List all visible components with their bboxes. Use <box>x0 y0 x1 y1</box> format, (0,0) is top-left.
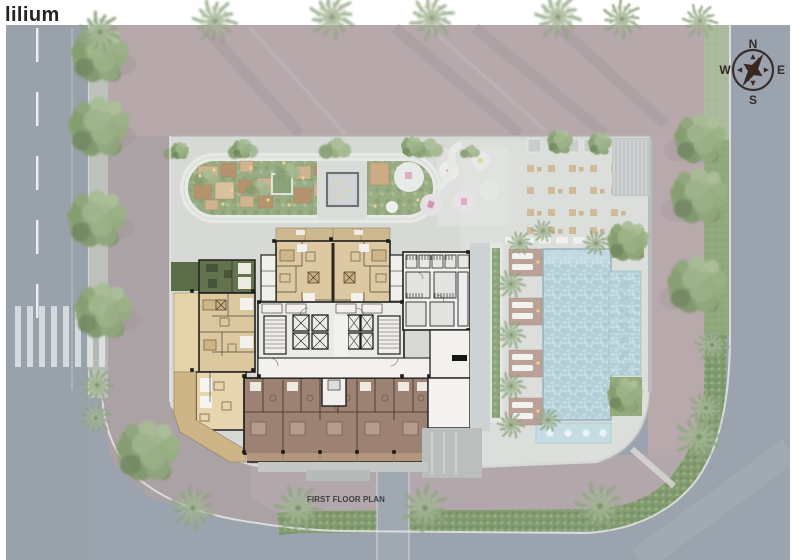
svg-text:lilium: lilium <box>5 4 60 26</box>
svg-text:S: S <box>749 93 757 107</box>
svg-text:N: N <box>749 37 758 51</box>
svg-text:E: E <box>777 63 785 77</box>
svg-text:W: W <box>719 63 731 77</box>
svg-text:FIRST FLOOR PLAN: FIRST FLOOR PLAN <box>307 495 385 504</box>
